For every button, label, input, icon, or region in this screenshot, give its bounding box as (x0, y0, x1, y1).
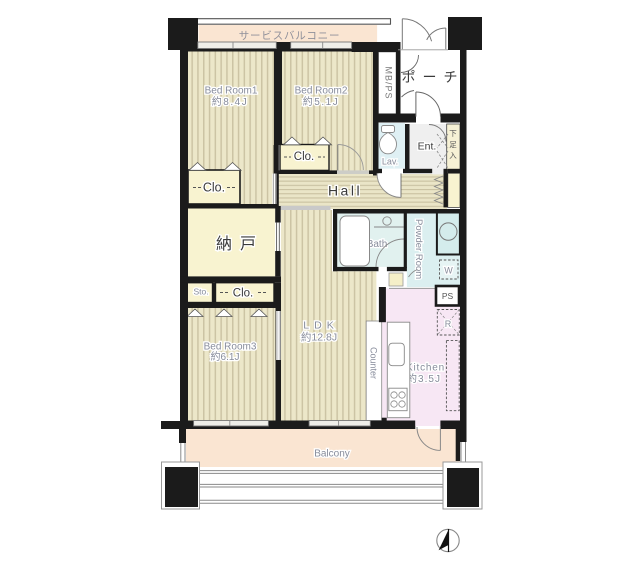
svg-text:Ent.: Ent. (418, 141, 437, 153)
svg-text:入: 入 (449, 151, 457, 160)
svg-text:Kitchen: Kitchen (406, 363, 445, 374)
svg-text:Clo.: Clo. (294, 151, 314, 163)
svg-text:Bed Room1: Bed Room1 (205, 86, 258, 97)
svg-text:約5.1J: 約5.1J (303, 95, 339, 108)
svg-text:約3.5J: 約3.5J (407, 372, 441, 385)
svg-text:Clo.: Clo. (233, 288, 253, 300)
svg-text:MB/PS: MB/PS (384, 67, 394, 100)
svg-text:Bed Room2: Bed Room2 (295, 86, 348, 97)
svg-text:約8.4J: 約8.4J (212, 95, 248, 108)
svg-text:サービスバルコニー: サービスバルコニー (239, 30, 341, 42)
svg-text:下: 下 (449, 129, 457, 138)
svg-text:R: R (445, 319, 452, 329)
svg-text:納戸: 納戸 (216, 235, 264, 253)
svg-text:Clo.: Clo. (203, 181, 225, 195)
svg-text:約6.1J: 約6.1J (211, 350, 240, 363)
svg-text:Sto.: Sto. (193, 287, 208, 297)
svg-text:Lav.: Lav. (382, 157, 398, 167)
svg-text:Powder Room: Powder Room (413, 219, 424, 279)
svg-text:ポーチ: ポーチ (402, 69, 465, 85)
svg-text:Counter: Counter (369, 347, 379, 379)
svg-text:PS: PS (442, 291, 454, 301)
svg-text:約12.8J: 約12.8J (301, 331, 337, 344)
svg-text:Balcony: Balcony (314, 449, 350, 460)
svg-text:LDK: LDK (303, 320, 338, 332)
svg-text:足: 足 (449, 140, 457, 149)
svg-text:W: W (444, 266, 453, 276)
svg-text:Hall: Hall (328, 183, 362, 199)
svg-text:Bed Room3: Bed Room3 (204, 342, 257, 353)
